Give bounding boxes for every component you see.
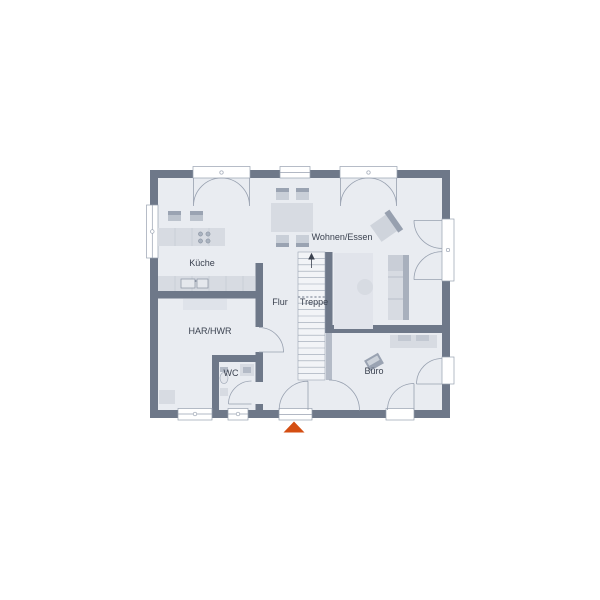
dining-table [271, 203, 313, 232]
desk [390, 335, 437, 348]
har-cabinet [159, 390, 175, 404]
floor-plan-drawing: Küche Wohnen/Essen Flur Treppe HAR/HWR W… [0, 0, 600, 600]
sink-icon [181, 279, 208, 288]
stair-stringer [326, 333, 332, 380]
wall-wc-left [212, 355, 219, 410]
coffee-table [357, 279, 373, 295]
washbasin-icon [240, 364, 254, 376]
french-door-living-marker [367, 171, 370, 174]
room-label-flur: Flur [272, 297, 288, 307]
sofa [388, 255, 409, 320]
wall-flur-upper [256, 263, 264, 327]
desk-accessory [416, 335, 429, 341]
window-wc-marker [236, 412, 240, 416]
wall-stair-right [325, 252, 333, 332]
terrace-door-buero-right-frame [442, 357, 454, 384]
dining-chair [276, 235, 289, 247]
window-left-marker [151, 230, 155, 234]
room-label-buero: Büro [364, 366, 383, 376]
floor-plan-page: Küche Wohnen/Essen Flur Treppe HAR/HWR W… [0, 0, 600, 600]
dining-chair [296, 188, 309, 200]
dining-chair [296, 235, 309, 247]
french-door-kitchen-marker [220, 171, 223, 174]
bar-stool [168, 211, 181, 221]
room-label-har-hwr: HAR/HWR [189, 326, 232, 336]
window-har-marker [193, 412, 197, 416]
french-door-right-marker [446, 248, 449, 251]
wall-wc-top [212, 355, 263, 362]
wall-kitchen-har [158, 291, 263, 299]
room-label-wc: WC [224, 368, 239, 378]
entrance-marker-icon [284, 422, 305, 433]
staircase [298, 252, 325, 380]
bar-stool [190, 211, 203, 221]
desk-accessory [398, 335, 411, 341]
kitchen-island [158, 228, 225, 246]
wall-flur-stub [256, 404, 264, 410]
dining-chair [276, 188, 289, 200]
har-appliance-zone [183, 299, 227, 310]
room-label-kueche: Küche [189, 258, 215, 268]
room-label-wohnen-essen: Wohnen/Essen [312, 232, 373, 242]
terrace-door-buero-bottom-frame [386, 409, 414, 421]
room-label-treppe: Treppe [300, 297, 328, 307]
